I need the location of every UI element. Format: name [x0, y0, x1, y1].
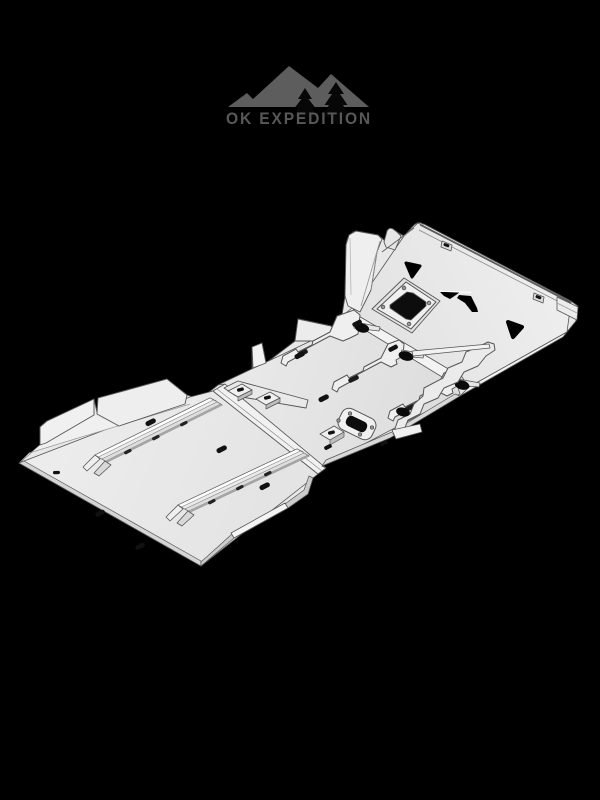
svg-text:OK EXPEDITION: OK EXPEDITION: [226, 109, 372, 128]
